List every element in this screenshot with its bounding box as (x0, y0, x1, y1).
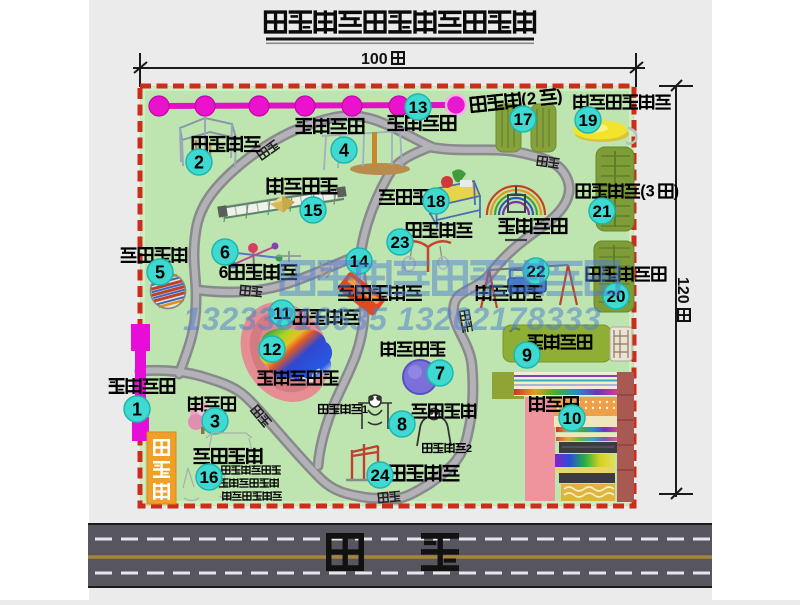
svg-text:(3: (3 (640, 183, 654, 201)
svg-text:6: 6 (220, 242, 230, 262)
svg-text:7: 7 (435, 363, 445, 383)
svg-text:19: 19 (579, 111, 598, 130)
svg-text:5: 5 (155, 262, 165, 282)
svg-text:1: 1 (132, 399, 142, 419)
svg-text:17: 17 (514, 110, 533, 129)
svg-text:15: 15 (304, 201, 323, 220)
svg-text:13: 13 (409, 98, 428, 117)
svg-text:10: 10 (563, 409, 582, 428)
svg-text:3: 3 (210, 411, 220, 431)
svg-text:120: 120 (674, 277, 691, 304)
svg-text:2: 2 (466, 443, 472, 455)
svg-text:): ) (674, 183, 679, 201)
svg-text:9: 9 (522, 345, 532, 365)
svg-text:8: 8 (397, 414, 407, 434)
svg-text:2: 2 (194, 152, 204, 172)
svg-text:21: 21 (593, 202, 612, 221)
svg-text:24: 24 (371, 466, 390, 485)
svg-text:12: 12 (263, 340, 282, 359)
svg-text:100: 100 (361, 51, 388, 68)
svg-text:23: 23 (391, 233, 410, 252)
svg-text:4: 4 (339, 140, 349, 160)
svg-text:16: 16 (200, 468, 219, 487)
svg-text:13233816635 13202178333: 13233816635 13202178333 (183, 301, 601, 337)
svg-text:18: 18 (427, 192, 446, 211)
svg-text:1: 1 (362, 404, 368, 416)
